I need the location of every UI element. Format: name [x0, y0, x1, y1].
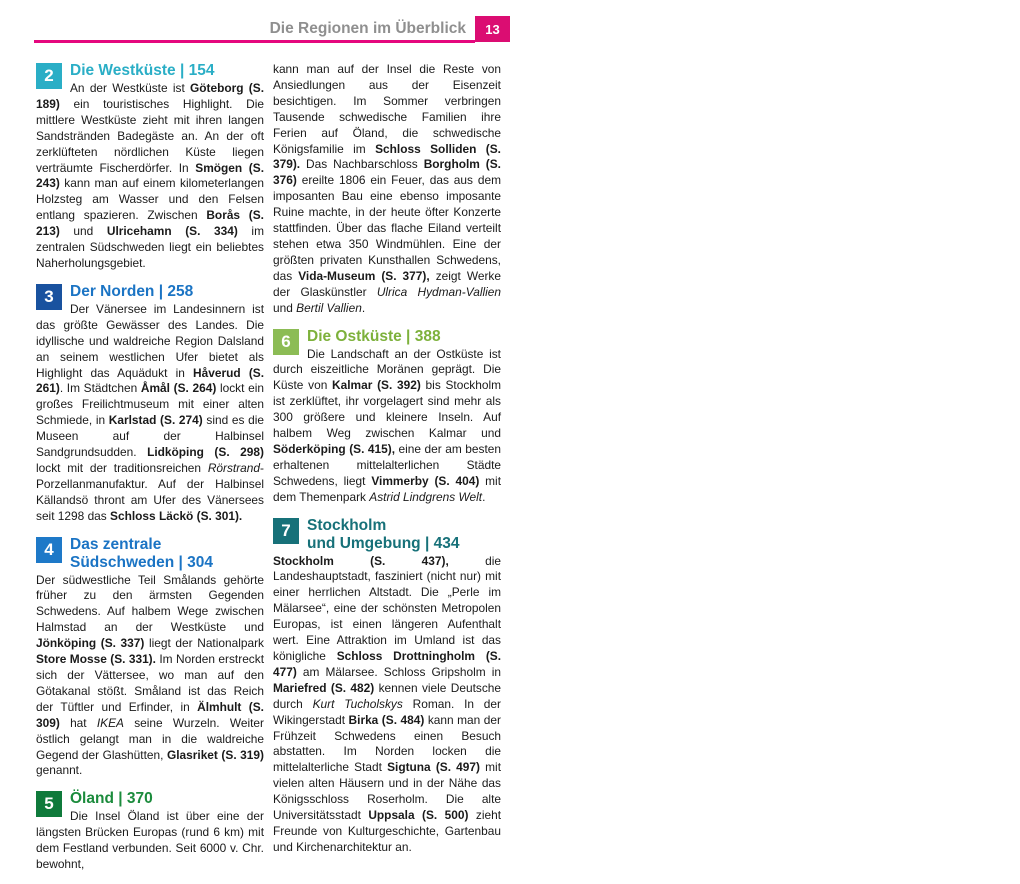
region-text: Der Vänersee im Landesinnern ist das grö… [36, 302, 264, 525]
region-text: Stockholm (S. 437), die Landeshauptstadt… [273, 554, 501, 856]
right-page-title: Die Regionen im Überblick [270, 20, 466, 38]
region-heading-7: Stockholmund Umgebung | 434 [273, 517, 501, 553]
region-text: Die Insel Öland ist über eine der längst… [36, 809, 264, 873]
text-column-2: kann man auf der Insel die Reste von Ans… [273, 62, 501, 867]
region-section-oeland-continued: kann man auf der Insel die Reste von Ans… [273, 62, 501, 317]
region-text: Die Landschaft an der Ostküste ist durch… [273, 347, 501, 506]
region-section-2: 2Die Westküste | 154An der Westküste ist… [36, 62, 264, 272]
region-number-6: 6 [273, 329, 299, 355]
region-number-5: 5 [36, 791, 62, 817]
region-text: kann man auf der Insel die Reste von Ans… [273, 62, 501, 317]
region-section-3: 3Der Norden | 258Der Vänersee im Landesi… [36, 283, 264, 525]
region-text: Der südwestliche Teil Smålands gehörte f… [36, 573, 264, 780]
region-heading-3: Der Norden | 258 [36, 283, 264, 301]
region-number-4: 4 [36, 537, 62, 563]
region-section-4: 4Das zentraleSüdschweden | 304Der südwes… [36, 536, 264, 780]
region-heading-5: Öland | 370 [36, 790, 264, 808]
region-heading-6: Die Ostküste | 388 [273, 328, 501, 346]
region-section-6: 6Die Ostküste | 388Die Landschaft an der… [273, 328, 501, 506]
region-heading-4: Das zentraleSüdschweden | 304 [36, 536, 264, 572]
region-number-7: 7 [273, 518, 299, 544]
region-section-5: 5Öland | 370Die Insel Öland ist über ein… [36, 790, 264, 873]
page-right: Die Regionen im Überblick 13 2Die Westkü… [0, 0, 510, 799]
text-column-1: 2Die Westküste | 154An der Westküste ist… [36, 62, 264, 884]
region-heading-2: Die Westküste | 154 [36, 62, 264, 80]
region-text: An der Westküste ist Göteborg (S. 189) e… [36, 81, 264, 272]
region-number-3: 3 [36, 284, 62, 310]
region-section-7: 7Stockholmund Umgebung | 434Stockholm (S… [273, 517, 501, 856]
header-rule [34, 40, 475, 43]
region-number-2: 2 [36, 63, 62, 89]
page-number-right: 13 [475, 16, 510, 42]
